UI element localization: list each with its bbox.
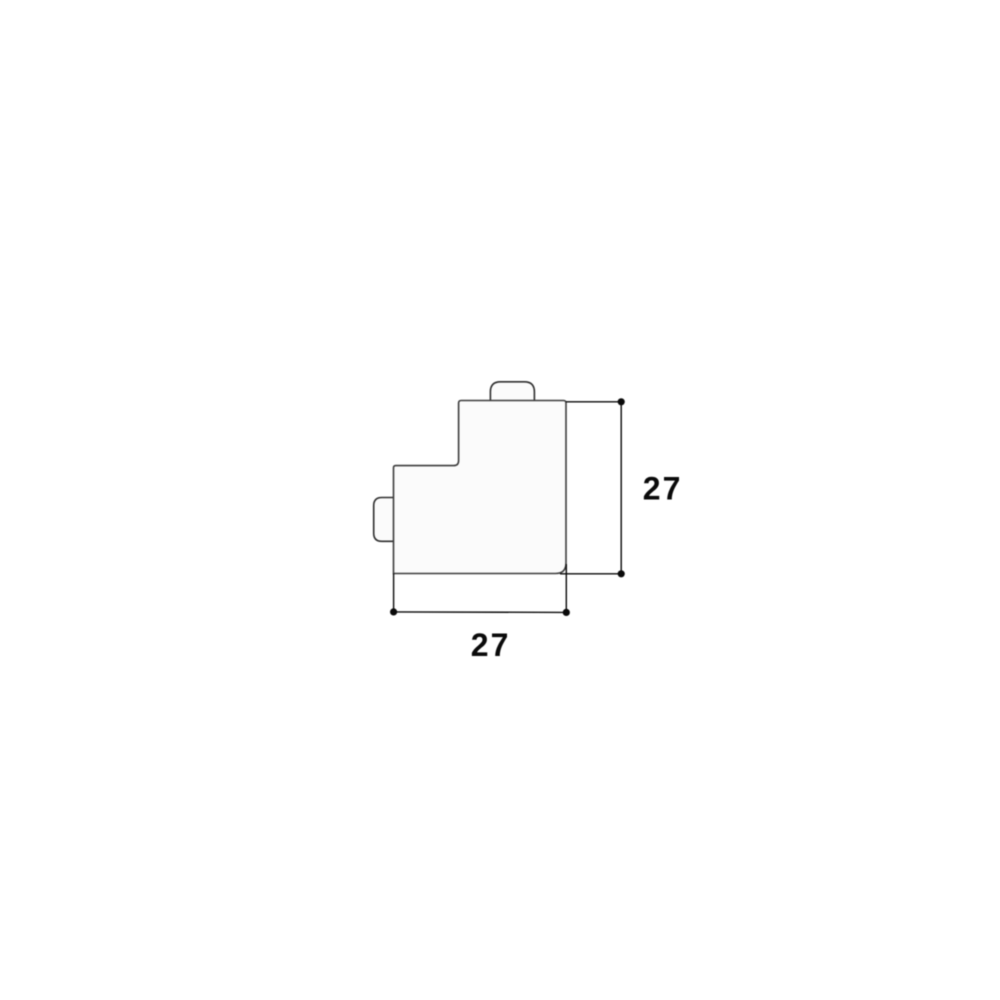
svg-text:27: 27 [643, 471, 683, 507]
svg-text:27: 27 [471, 627, 511, 663]
